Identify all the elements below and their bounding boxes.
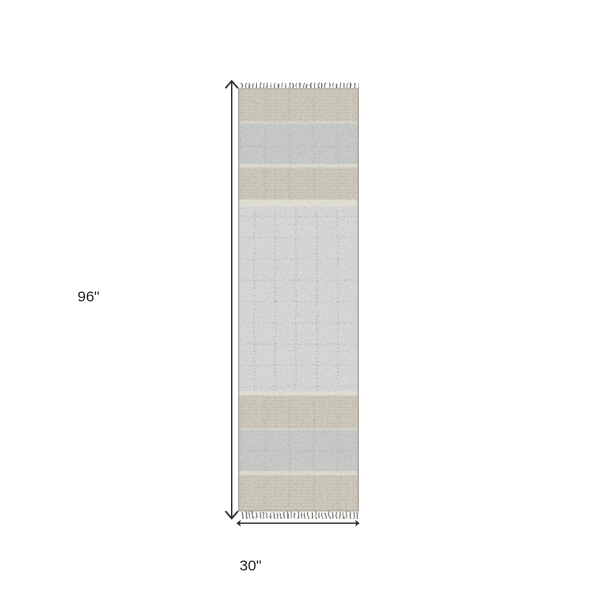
svg-text:30": 30"	[240, 557, 262, 574]
svg-text:96": 96"	[78, 288, 100, 305]
